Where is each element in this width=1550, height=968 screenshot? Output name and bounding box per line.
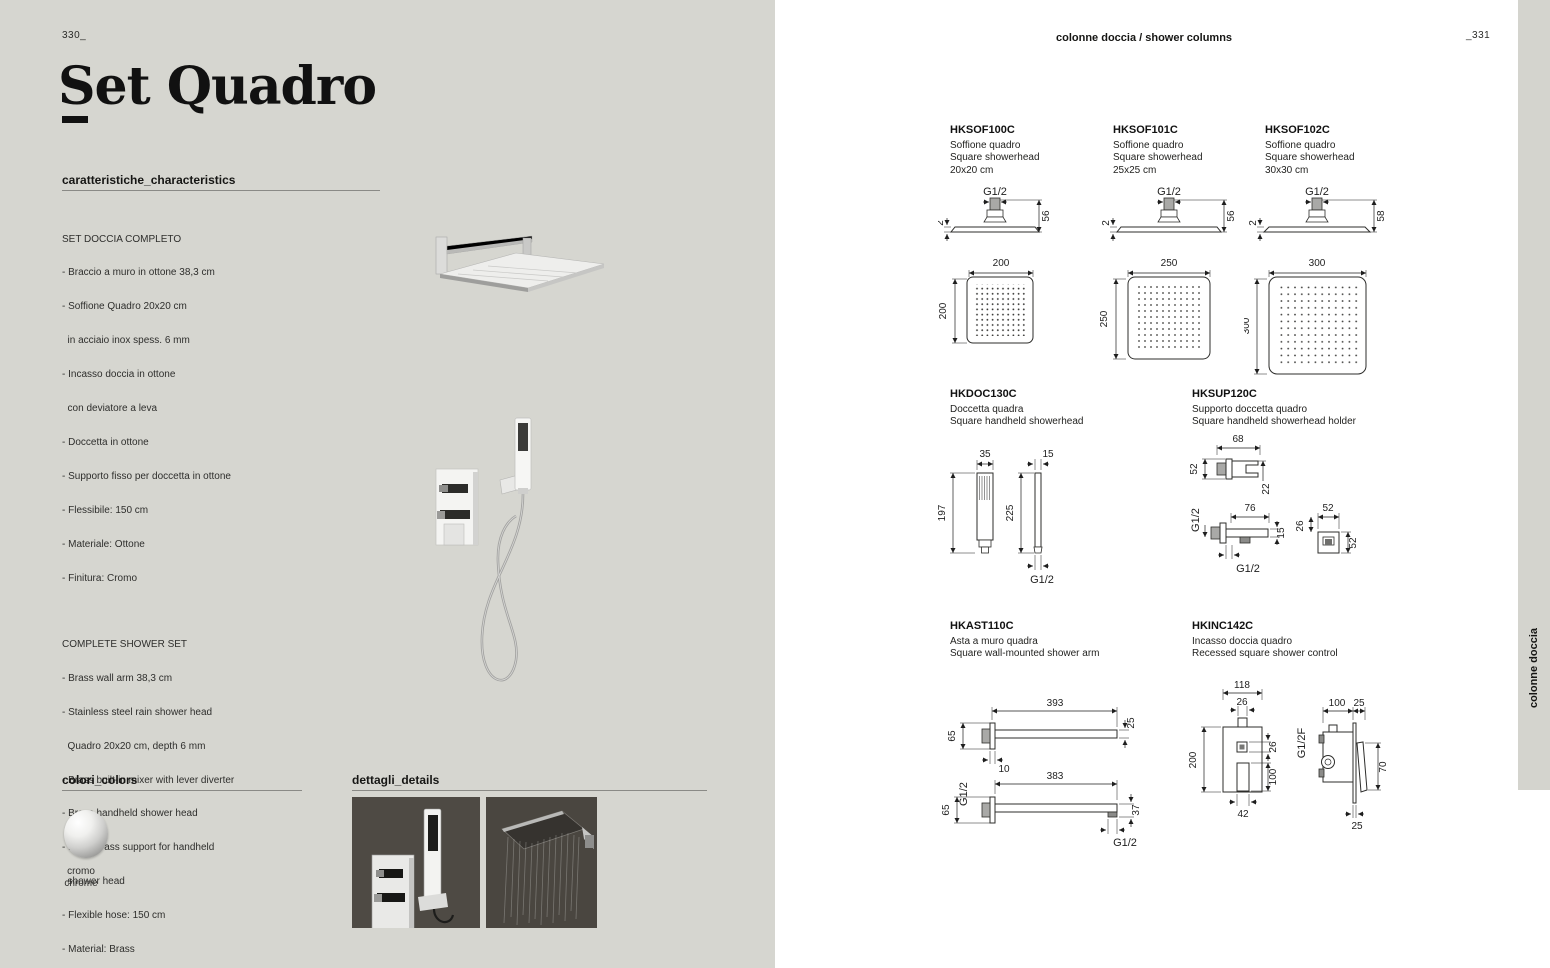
drawing-hksup120c: 68 52 22 G1/2 76 15 G1/2 52 26 — [1185, 425, 1385, 585]
dim-label: 383 — [1047, 771, 1064, 782]
product-name-it: Soffione quadro — [950, 140, 1040, 153]
product-name-it: Asta a muro quadra — [950, 636, 1100, 649]
dim-label: 68 — [1232, 434, 1244, 445]
characteristics-title-en: COMPLETE SHOWER SET — [62, 639, 234, 650]
details-heading: dettagli_details — [352, 773, 439, 787]
dim-label: G1/2 — [1305, 186, 1329, 198]
drawing-hkinc142c: 118 26 200 26 100 42 100 25 G1/2F — [1185, 675, 1395, 855]
drawing-hkast110c: 393 25 65 10 383 G1/2 65 37 G1/2 — [938, 690, 1153, 855]
product-block-hksof101c: HKSOF101C Soffione quadro Square showerh… — [1113, 124, 1203, 177]
dim-label: G1/2F — [1296, 727, 1308, 758]
product-name-en: Recessed square shower control — [1192, 648, 1338, 661]
dim-label: 76 — [1244, 503, 1256, 514]
dim-label: 35 — [979, 449, 991, 460]
dim-label: G1/2 — [1030, 574, 1054, 586]
dim-label: 100 — [1329, 698, 1346, 709]
product-code: HKINC142C — [1192, 620, 1338, 633]
product-block-hkast110c: HKAST110C Asta a muro quadra Square wall… — [950, 620, 1100, 661]
dim-label: 393 — [1047, 698, 1064, 709]
page-title: Set Quadro — [58, 56, 376, 117]
characteristic-item: - Incasso doccia in ottone — [62, 369, 234, 380]
product-name-en: Square wall-mounted shower arm — [950, 648, 1100, 661]
characteristic-item: - Stainless steel rain shower head — [62, 707, 234, 718]
dim-label: 2 — [1101, 220, 1112, 226]
characteristic-item: - Supporto fisso per doccetta in ottone — [62, 471, 234, 482]
dim-label: 56 — [1041, 210, 1052, 222]
product-code: HKAST110C — [950, 620, 1100, 633]
product-name-it: Soffione quadro — [1265, 140, 1355, 153]
dim-label: 15 — [1276, 527, 1287, 539]
colors-rule — [62, 790, 302, 791]
dim-label: 200 — [938, 302, 949, 319]
characteristics-title-it: SET DOCCIA COMPLETO — [62, 234, 234, 245]
product-block-hksup120c: HKSUP120C Supporto doccetta quadro Squar… — [1192, 388, 1356, 429]
left-page: 330_ Set Quadro caratteristiche_characte… — [0, 0, 775, 968]
dim-label: G1/2 — [958, 782, 970, 806]
product-code: HKSUP120C — [1192, 388, 1356, 401]
dim-label: 25 — [1351, 821, 1363, 832]
colors-heading: colori_colors — [62, 773, 137, 787]
swatch-label: cromo chrome — [46, 866, 116, 889]
dim-label: 56 — [1226, 210, 1237, 222]
product-code: HKSOF102C — [1265, 124, 1355, 137]
characteristic-item: in acciaio inox spess. 6 mm — [62, 335, 234, 346]
dim-label: G1/2 — [1190, 508, 1202, 532]
dim-label: 10 — [998, 764, 1010, 775]
catalog-spread: 330_ Set Quadro caratteristiche_characte… — [0, 0, 1550, 968]
characteristic-item: - Flexible hose: 150 cm — [62, 910, 234, 921]
dim-label: 197 — [938, 504, 948, 521]
dim-label: 25 — [1353, 698, 1365, 709]
product-code: HKSOF101C — [1113, 124, 1203, 137]
characteristics-heading: caratteristiche_characteristics — [62, 173, 235, 187]
drawing-hkdoc130c: 35 197 15 225 G1/2 — [938, 440, 1063, 590]
dim-label: 118 — [1234, 680, 1250, 691]
dim-label: 300 — [1244, 317, 1252, 334]
drawing-hksof102c: G1/2 2 58 300 300 — [1244, 182, 1399, 382]
dim-label: 250 — [1100, 310, 1110, 327]
characteristic-item: Quadro 20x20 cm, depth 6 mm — [62, 741, 234, 752]
product-name-en: Square showerhead — [1113, 152, 1203, 165]
characteristic-item: - Flessibile: 150 cm — [62, 505, 234, 516]
main-product-photo — [428, 222, 618, 714]
product-code: HKSOF100C — [950, 124, 1040, 137]
title-underline-bar — [62, 116, 88, 123]
product-block-hkinc142c: HKINC142C Incasso doccia quadro Recessed… — [1192, 620, 1338, 661]
product-name-en: Square showerhead — [1265, 152, 1355, 165]
dim-label: 58 — [1376, 210, 1387, 222]
chrome-swatch — [64, 810, 108, 858]
dim-label: G1/2 — [983, 186, 1007, 198]
detail-photo-showerhead — [486, 797, 597, 928]
dim-label: 300 — [1309, 258, 1326, 269]
drawing-hksof101c: G1/2 2 56 250 250 — [1100, 182, 1250, 368]
characteristics-rule — [62, 190, 380, 191]
dim-label: 52 — [1189, 463, 1200, 475]
page-number-left: 330_ — [62, 30, 86, 41]
nozzle-grid — [1277, 285, 1358, 366]
characteristic-item: - Brass wall arm 38,3 cm — [62, 673, 234, 684]
dim-label: 2 — [938, 220, 946, 226]
product-size: 30x30 cm — [1265, 165, 1355, 178]
detail-photo-mixer — [352, 797, 480, 928]
side-tab: colonne doccia — [1518, 0, 1550, 790]
dim-label: 200 — [1188, 751, 1199, 768]
dim-label: 100 — [1268, 768, 1279, 785]
characteristic-item: - Materiale: Ottone — [62, 539, 234, 550]
dim-label: 65 — [947, 730, 958, 742]
characteristic-item: con deviatore a leva — [62, 403, 234, 414]
dim-label: 26 — [1268, 741, 1279, 753]
showerhead-top — [440, 253, 604, 288]
product-size: 25x25 cm — [1113, 165, 1203, 178]
dim-label: 250 — [1161, 258, 1178, 269]
side-tab-label: colonne doccia — [1528, 628, 1540, 708]
dim-label: G1/2 — [1113, 837, 1137, 849]
dim-label: 37 — [1131, 804, 1142, 816]
characteristic-item: - Finitura: Cromo — [62, 573, 234, 584]
detail-photo-mixer-art — [352, 797, 480, 928]
dim-label: 200 — [993, 258, 1010, 269]
page-number-right: _331 — [1466, 30, 1490, 41]
dim-label: 225 — [1005, 504, 1016, 521]
dim-label: G1/2 — [1236, 563, 1260, 575]
characteristic-item: - Soffione Quadro 20x20 cm — [62, 301, 234, 312]
product-name-it: Supporto doccetta quadro — [1192, 404, 1356, 417]
product-name-it: Incasso doccia quadro — [1192, 636, 1338, 649]
drawing-hksof100c: G1/2 2 56 200 200 — [938, 182, 1063, 352]
product-name-it: Soffione quadro — [1113, 140, 1203, 153]
nozzle-grid — [974, 284, 1026, 336]
product-size: 20x20 cm — [950, 165, 1040, 178]
dim-label: 26 — [1295, 520, 1306, 532]
dim-label: G1/2 — [1157, 186, 1181, 198]
details-rule — [352, 790, 707, 791]
product-code: HKDOC130C — [950, 388, 1083, 401]
dim-label: 42 — [1237, 809, 1249, 820]
dim-label: 25 — [1126, 717, 1137, 729]
product-name-en: Square showerhead — [950, 152, 1040, 165]
dim-label: 52 — [1348, 537, 1359, 549]
product-block-hkdoc130c: HKDOC130C Doccetta quadra Square handhel… — [950, 388, 1083, 429]
dim-label: 70 — [1378, 761, 1389, 773]
detail-photo-showerhead-art — [486, 797, 597, 928]
mixer-lever — [1357, 742, 1367, 792]
characteristic-item: - Braccio a muro in ottone 38,3 cm — [62, 267, 234, 278]
product-name-en: Square handheld showerhead — [950, 416, 1083, 429]
product-name-it: Doccetta quadra — [950, 404, 1083, 417]
nozzle-grid — [1136, 285, 1202, 351]
characteristic-item: - Material: Brass — [62, 944, 234, 955]
dim-label: 2 — [1248, 220, 1259, 226]
product-block-hksof100c: HKSOF100C Soffione quadro Square showerh… — [950, 124, 1040, 177]
dim-label: 52 — [1322, 503, 1334, 514]
dim-label: 65 — [941, 804, 952, 816]
dim-label: 15 — [1042, 449, 1054, 460]
characteristic-item: - Doccetta in ottone — [62, 437, 234, 448]
right-page-header: colonne doccia / shower columns — [1056, 32, 1232, 44]
dim-label: 22 — [1261, 483, 1272, 495]
product-block-hksof102c: HKSOF102C Soffione quadro Square showerh… — [1265, 124, 1355, 177]
